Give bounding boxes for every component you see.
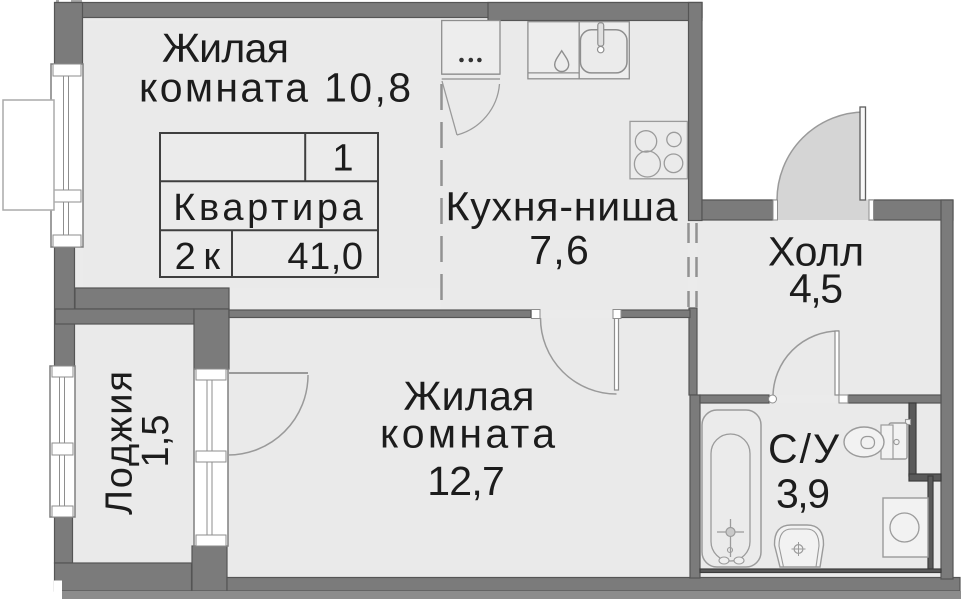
svg-text:1: 1 xyxy=(332,137,353,179)
svg-text:7,6: 7,6 xyxy=(529,227,589,273)
svg-text:1,5: 1,5 xyxy=(135,415,177,468)
svg-text:4,5: 4,5 xyxy=(789,266,843,312)
svg-text:12,7: 12,7 xyxy=(427,458,505,504)
svg-text:3,9: 3,9 xyxy=(776,471,830,517)
svg-text:41,0: 41,0 xyxy=(287,236,363,278)
svg-text:С/У: С/У xyxy=(768,426,840,472)
svg-text:комната 10,8: комната 10,8 xyxy=(139,65,411,111)
svg-text:Кухня-ниша: Кухня-ниша xyxy=(446,184,678,230)
